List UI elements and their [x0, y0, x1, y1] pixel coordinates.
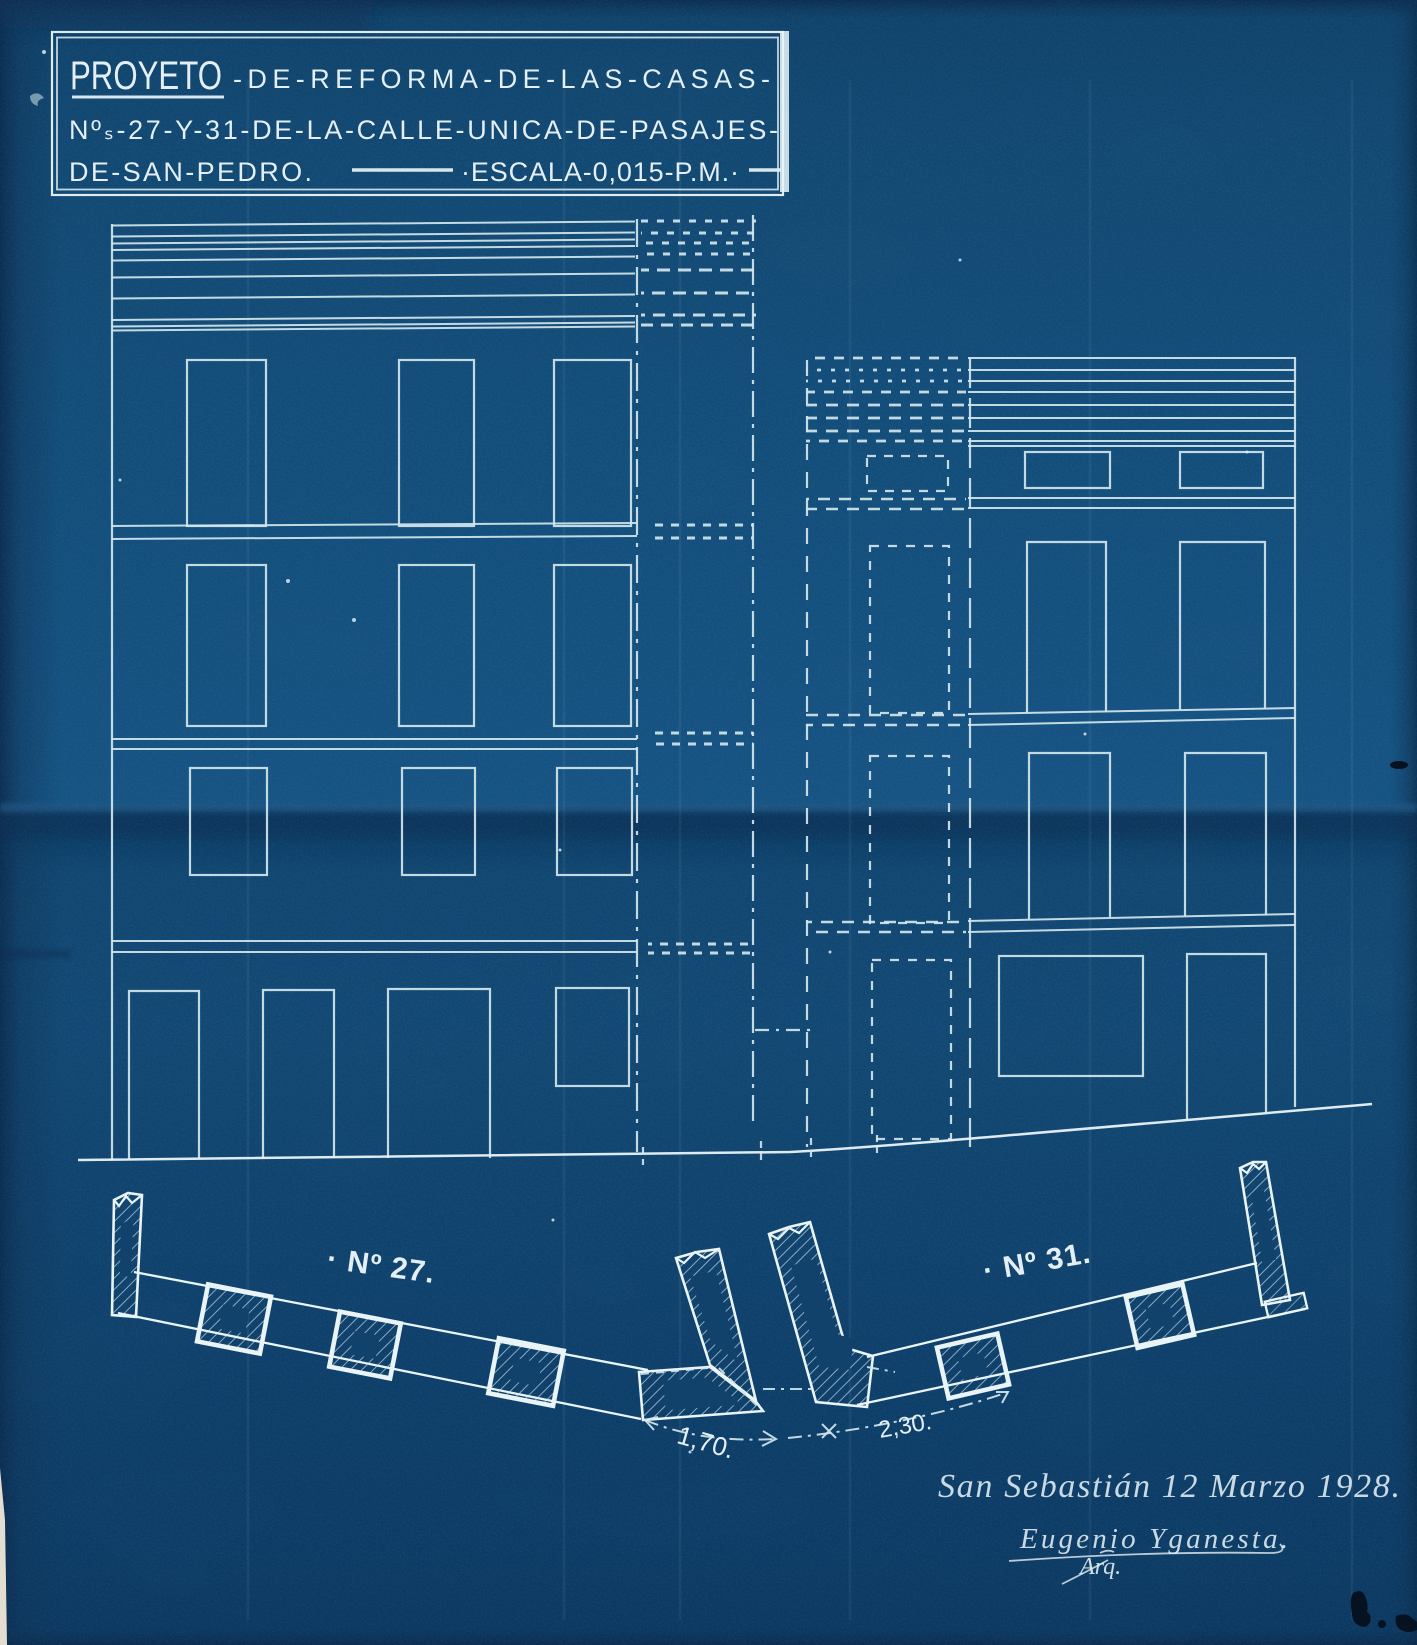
svg-text:·ESCALA-0,015-P.M.·: ·ESCALA-0,015-P.M.·: [461, 157, 739, 187]
svg-text:Eugenio Yganesta.: Eugenio Yganesta.: [1019, 1523, 1288, 1555]
svg-text:San Sebastián 12 Marzo 1928.: San Sebastián 12 Marzo 1928.: [938, 1468, 1400, 1505]
svg-text:Nºₛ-27-Y-31-DE-LA-CALLE-UNICA-: Nºₛ-27-Y-31-DE-LA-CALLE-UNICA-DE-PASAJES…: [69, 115, 778, 145]
svg-text:DE-SAN-PEDRO.: DE-SAN-PEDRO.: [69, 157, 312, 187]
svg-text:PROYETO: PROYETO: [70, 54, 222, 98]
svg-text:Arq.: Arq.: [1078, 1554, 1121, 1580]
